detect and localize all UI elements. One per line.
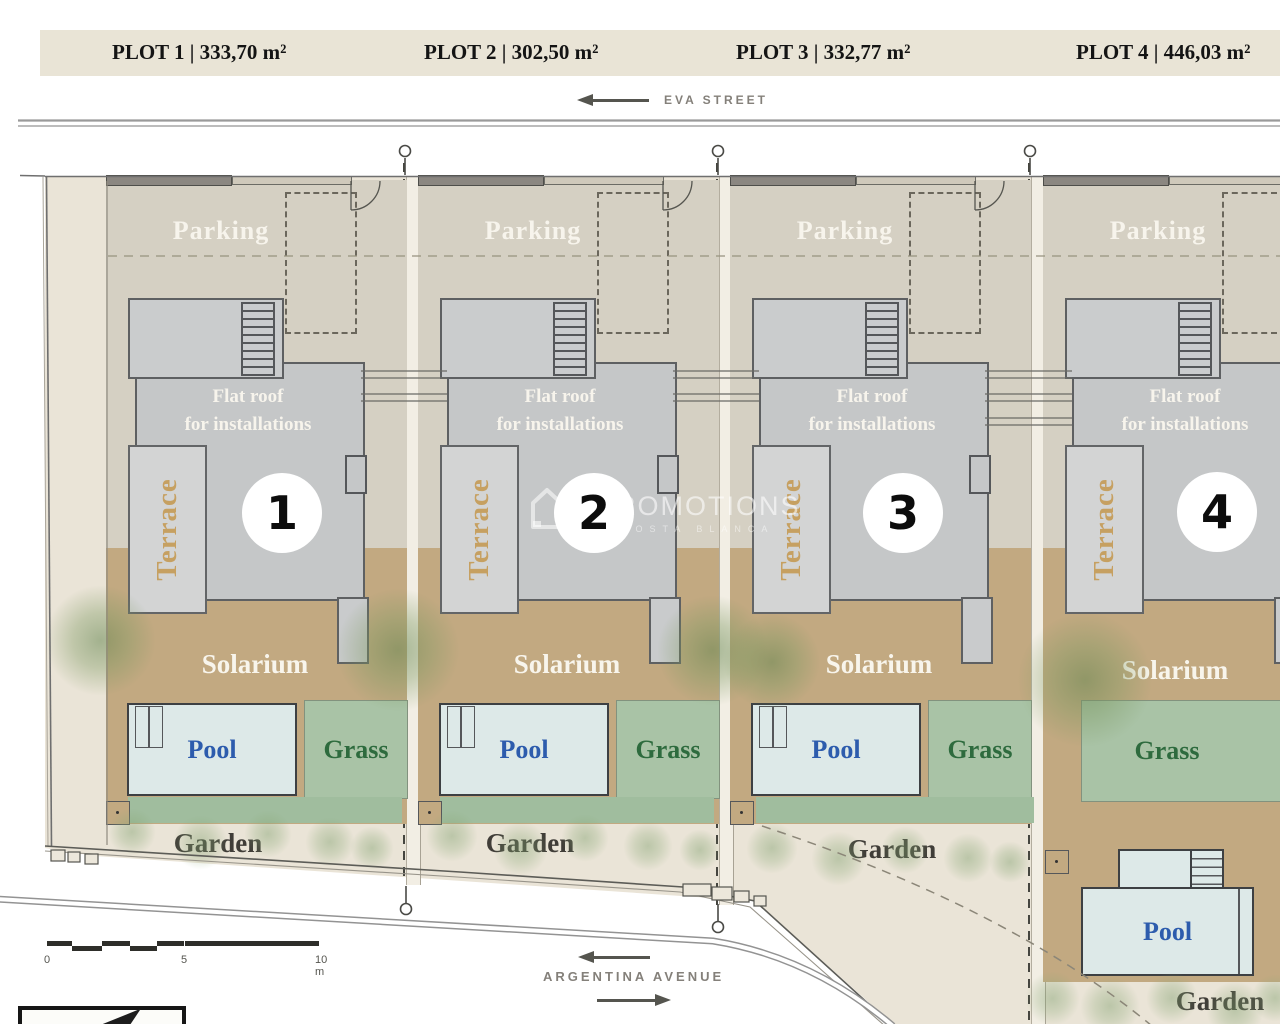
gate-arc-icon [351, 181, 1004, 210]
watermark-subtitle: COSTA BLANCA [622, 524, 774, 534]
plot-4-area-label: PLOT 4 | 446,03 m² [1076, 40, 1250, 65]
arrow-shaft [592, 956, 650, 959]
scale-mid-label: 5 [181, 954, 187, 966]
scale-end-label: 10 m [315, 954, 337, 978]
arrow-right-icon [655, 994, 671, 1006]
unit-number-badge: 1 [242, 473, 322, 553]
eva-street-label: EVA STREET [664, 93, 768, 107]
scale-bar: 0 5 10 m [47, 941, 337, 971]
setback-dashed-line [762, 826, 1152, 1024]
unit-number-badge: 2 [554, 473, 634, 553]
pergola-connector-lines [361, 371, 1072, 425]
lamp-post-icon [400, 146, 1036, 933]
arrow-shaft [591, 99, 649, 102]
plot-2-area-label: PLOT 2 | 302,50 m² [424, 40, 598, 65]
arrow-shaft [597, 999, 655, 1002]
scale-start-label: 0 [44, 954, 50, 966]
argentina-avenue-label: ARGENTINA AVENUE [543, 969, 723, 984]
plot-3-area-label: PLOT 3 | 332,77 m² [736, 40, 910, 65]
site-plan: Parking Flat rooffor installations Terra… [0, 0, 1280, 1024]
compass-box [18, 1006, 186, 1024]
unit-number-badge: 3 [863, 473, 943, 553]
unit-number-badge: 4 [1177, 472, 1257, 552]
compass-icon [78, 1009, 146, 1024]
south-boundary-line [45, 846, 893, 1024]
plot-1-area-label: PLOT 1 | 333,70 m² [112, 40, 286, 65]
